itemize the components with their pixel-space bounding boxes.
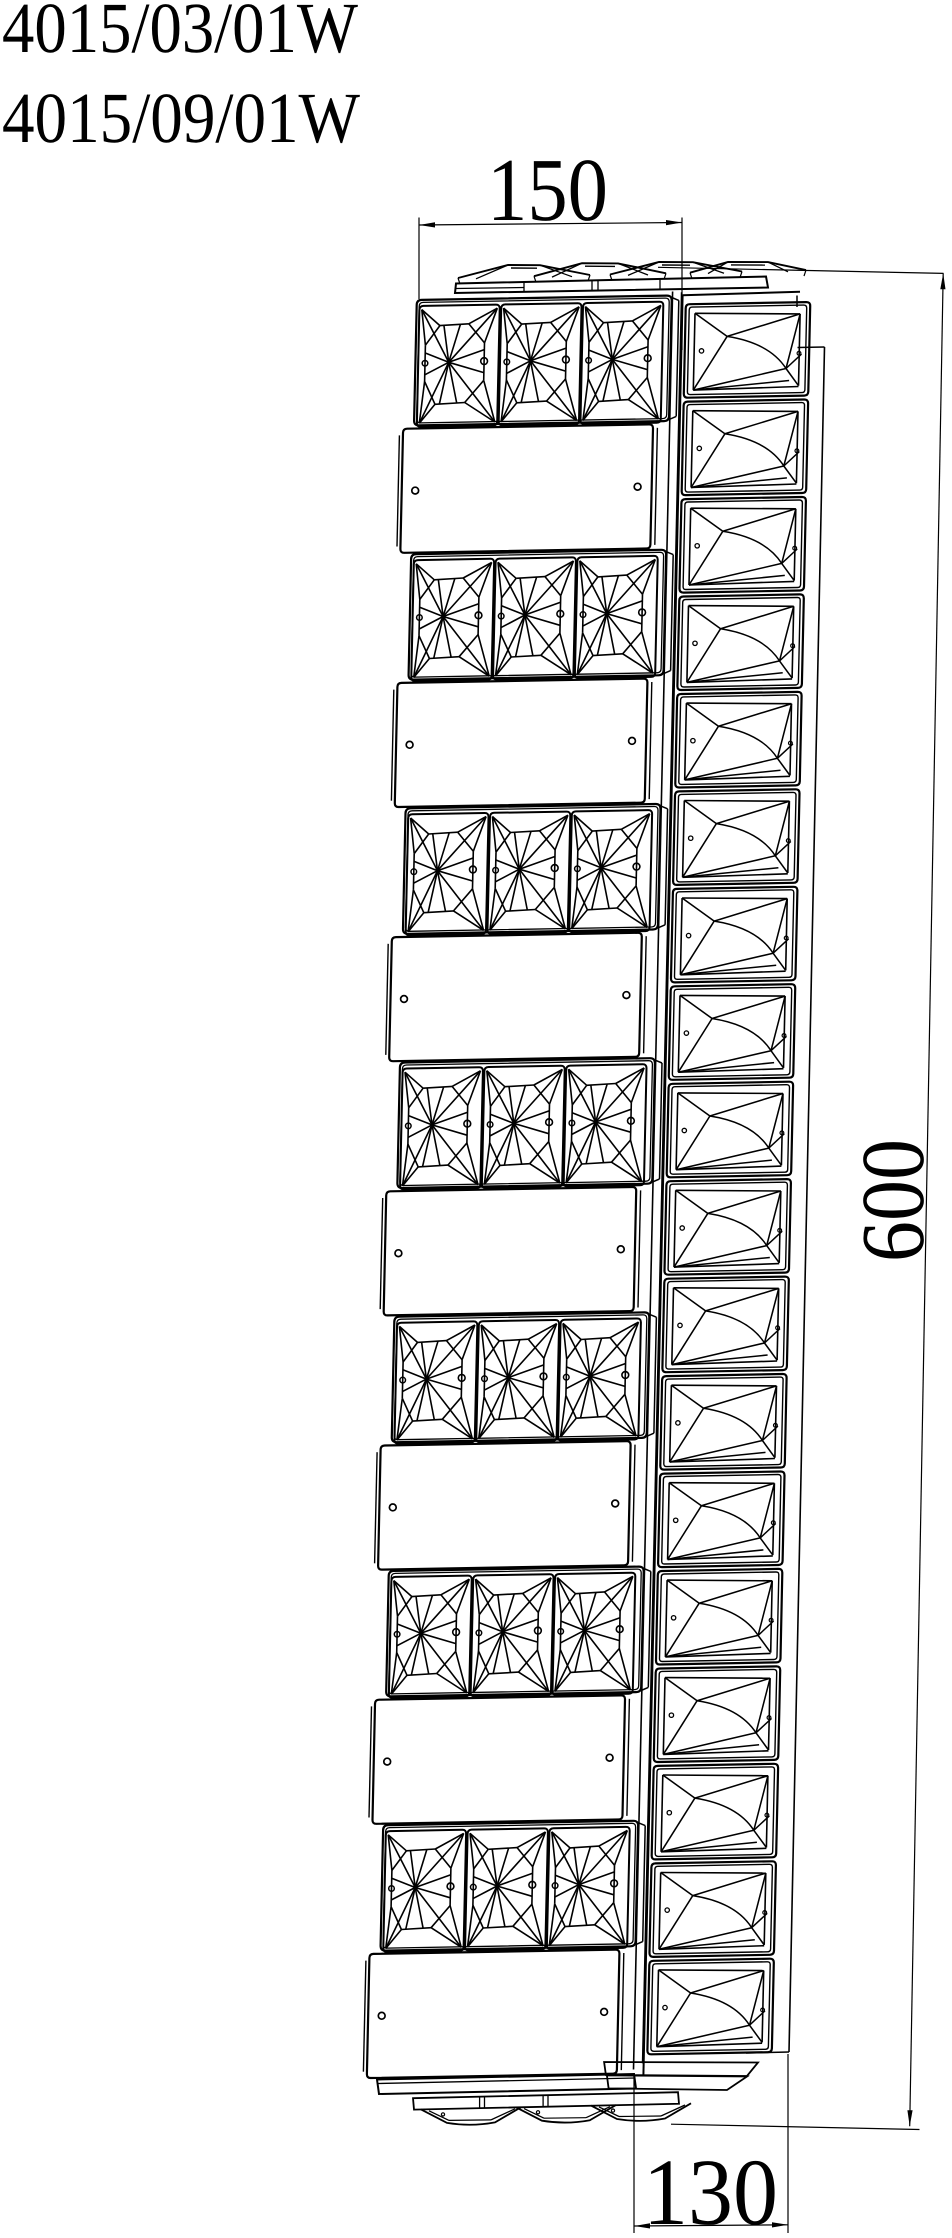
svg-text:150: 150 [487, 141, 608, 240]
svg-text:4015/09/01W: 4015/09/01W [2, 78, 360, 158]
svg-text:4015/03/01W: 4015/03/01W [2, 0, 358, 68]
svg-text:130: 130 [643, 2139, 778, 2233]
svg-text:600: 600 [844, 1139, 943, 1262]
